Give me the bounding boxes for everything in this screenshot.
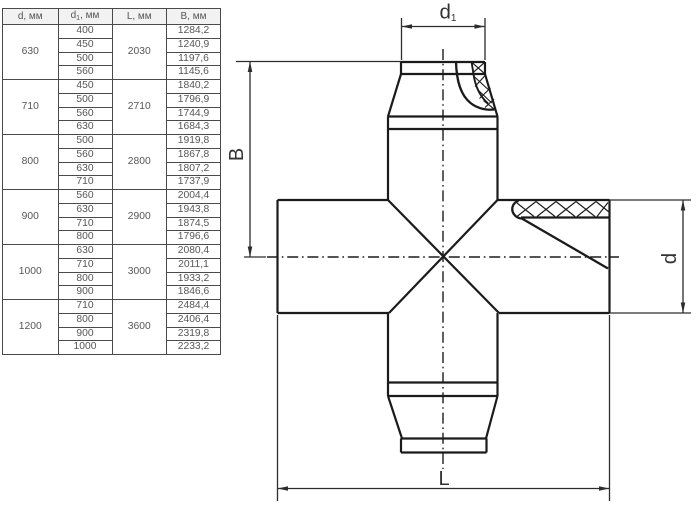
svg-text:L: L (438, 468, 449, 490)
svg-text:d: d (658, 253, 681, 264)
svg-text:B: B (226, 148, 248, 161)
svg-text:d1: d1 (440, 1, 457, 25)
